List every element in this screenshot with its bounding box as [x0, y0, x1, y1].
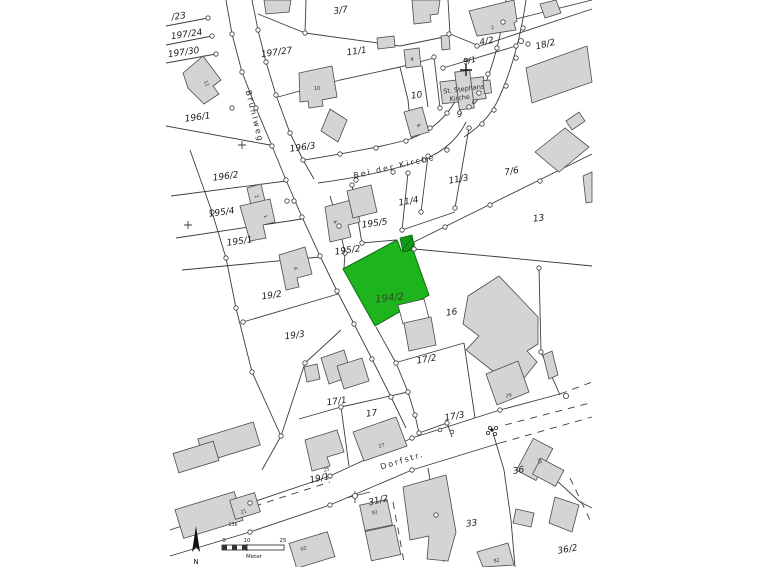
parcel-label: 197/27: [260, 46, 293, 60]
parcel-label: 7/6: [504, 166, 520, 178]
parcel-label: 36/2: [557, 543, 579, 556]
building-number: 10: [314, 86, 320, 92]
scale-unit: Meter: [246, 554, 263, 560]
parcel-label: /23: [170, 11, 187, 23]
scale-tick-0: 0: [222, 538, 226, 544]
street-label-bei-der-kirche: Bei der Kirche: [353, 153, 437, 181]
church-house-number: 6: [472, 100, 475, 105]
building-number: 29: [505, 392, 512, 399]
parcel-label: 11/1: [346, 46, 367, 59]
parcel-label: 17/2: [416, 353, 438, 366]
parcel-label: 4/2: [479, 36, 495, 48]
parcel-label: 33: [465, 518, 478, 530]
scale-bar: 0 10 25 Meter: [222, 538, 287, 560]
parcel-label: 16: [445, 307, 458, 319]
parcel-label: 17: [365, 408, 378, 420]
parcel-label: 19/2: [261, 290, 283, 303]
parcel-label: 195/1: [226, 235, 253, 249]
church-point-number: 65: [464, 58, 470, 64]
parcel-label: 195/4: [208, 206, 235, 220]
building-number: 92: [371, 509, 378, 516]
parcel-label: 19/3: [284, 330, 306, 343]
parcel-label: 10: [410, 90, 423, 102]
parcel-label: 19/1: [309, 472, 331, 486]
tree-symbol: [486, 426, 497, 435]
building-number: 4: [410, 57, 413, 63]
parcel-label: 9: [456, 110, 463, 121]
parcel-label: 197/24: [170, 28, 203, 42]
parcel-label: 195/2: [334, 244, 361, 258]
north-label: N: [193, 558, 198, 566]
parcel-label: 196/1: [184, 111, 211, 125]
parcel-label: 195/5: [361, 217, 388, 231]
parcel-label: 11/4: [398, 195, 420, 208]
cadastral-map: /23 197/24 197/30 197/27 3/7 11/1 196/1 …: [0, 0, 768, 567]
building-number: 82: [493, 557, 500, 564]
lamp-symbol: [352, 493, 357, 498]
parcel-label: 13: [532, 213, 545, 225]
scale-tick-25: 25: [280, 538, 287, 544]
parcel-label: 36: [512, 465, 525, 477]
scale-tick-10: 10: [244, 538, 251, 544]
street-label-bruehlweg: Brühlweg: [244, 89, 266, 143]
building-number: 136: [228, 522, 237, 528]
parcel-label: 196/3: [289, 141, 316, 155]
map-canvas: /23 197/24 197/30 197/27 3/7 11/1 196/1 …: [0, 0, 768, 567]
parcel-label: 11/3: [448, 173, 470, 186]
parcel-label: 3/7: [333, 5, 349, 17]
parcel-label: 18/2: [534, 38, 556, 53]
parcel-label: 196/2: [212, 170, 239, 184]
